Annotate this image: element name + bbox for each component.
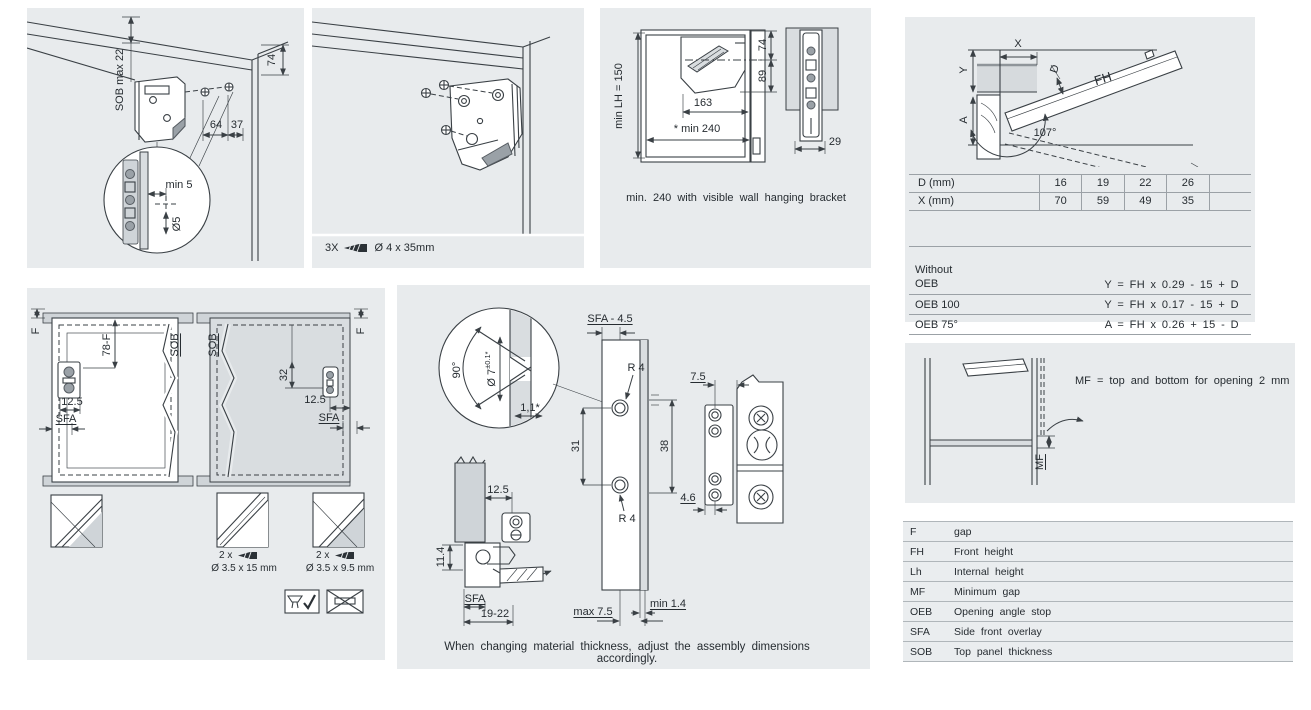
screw-15-size: Ø 3.5 x 15 mm xyxy=(189,563,299,574)
legend-abbr: SOB xyxy=(903,646,954,658)
label-x: X xyxy=(1014,38,1021,50)
dim-1922: 19-22 xyxy=(481,608,509,620)
drilling-pattern-line-art xyxy=(397,285,870,669)
label-sob-left: SOB xyxy=(169,333,181,356)
legend-desc: Front height xyxy=(954,546,1013,558)
dim-r4-bottom: R 4 xyxy=(618,513,635,525)
screw-15-row: 2 x xyxy=(219,550,258,561)
dim-sob-max: SOB max 22 xyxy=(114,49,126,111)
dim-31: 31 xyxy=(570,440,582,452)
dim-f-left: F xyxy=(30,328,42,335)
panel-hinge-position: SOB max 22 74 64 37 min 5 Ø5 xyxy=(27,8,304,268)
table-row: D (mm) 16 19 22 26 xyxy=(909,174,1251,192)
dim-min-240: * min 240 xyxy=(674,123,720,135)
cabinet-corner-line-art xyxy=(27,8,304,268)
dim-min5: min 5 xyxy=(166,179,193,191)
dx-table: D (mm) 16 19 22 26 X (mm) 70 59 49 35 xyxy=(909,174,1251,211)
dim-29: 29 xyxy=(829,136,841,148)
cell: 22 xyxy=(1124,175,1166,192)
corner-thumbnail-2 xyxy=(217,493,268,547)
legend-row: MF Minimum gap xyxy=(903,581,1293,601)
panel7-caption: When changing material thickness, adjust… xyxy=(412,641,842,665)
label-a: A xyxy=(958,116,970,123)
panel-minimum-gap: MF MF = top and bottom for opening 2 mm xyxy=(905,343,1295,503)
cell: 49 xyxy=(1124,193,1166,210)
screw-qty-label: 3X xyxy=(325,242,338,254)
dim-sfa-45: SFA - 4.5 xyxy=(587,313,632,325)
dim-r4-top: R 4 xyxy=(627,362,644,374)
corner-thumbnail-1 xyxy=(51,495,102,547)
screw-95-size: Ø 3.5 x 9.5 mm xyxy=(285,563,395,574)
legend-abbr: FH xyxy=(903,546,954,558)
formula-label: OEB 75° xyxy=(909,318,958,332)
legend-desc: Minimum gap xyxy=(954,586,1020,598)
dia7-value: Ø 7 xyxy=(486,369,498,387)
dim-min-lh: min LH = 150 xyxy=(613,63,625,129)
legend-abbr: OEB xyxy=(903,606,954,618)
label-y: Y xyxy=(958,66,970,73)
panel-screw-mounting: 3X Ø 4 x 35mm xyxy=(312,8,584,268)
dim-74: 74 xyxy=(757,39,769,51)
label-sfa-right: SFA xyxy=(319,412,340,424)
label-sfa: SFA xyxy=(465,593,486,605)
formula-row: OEB 100 Y = FH x 0.17 - 15 + D xyxy=(909,294,1251,314)
legend-row: FH Front height xyxy=(903,541,1293,561)
screw-size-label: Ø 4 x 35mm xyxy=(374,242,434,254)
dim-37: 37 xyxy=(231,119,243,131)
panel-internal-dimensions: min LH = 150 74 89 163 * min 240 29 min.… xyxy=(600,8,871,268)
screw-icon xyxy=(238,551,258,560)
dim-90deg: 90° xyxy=(451,362,463,379)
screw-icon xyxy=(344,243,368,253)
panel3-caption: min. 240 with visible wall hanging brack… xyxy=(608,192,864,204)
panel-front-height: Y A X D FH 107° D (mm) 16 19 22 26 X (mm… xyxy=(905,17,1255,322)
cell: 59 xyxy=(1081,193,1123,210)
dim-32: 32 xyxy=(278,369,290,381)
screw-mounting-line-art xyxy=(312,8,584,268)
formula-value: A = FH x 0.26 + 15 - D xyxy=(1105,319,1251,331)
legend-row: F gap xyxy=(903,521,1293,541)
dim-78-f: 78-F xyxy=(101,334,113,357)
cell: 35 xyxy=(1166,193,1208,210)
dim-max75: max 7.5 xyxy=(573,606,612,618)
dim-dia5: Ø5 xyxy=(171,217,183,232)
dim-46: 4.6 xyxy=(680,492,695,504)
screw-spec-row: 3X Ø 4 x 35mm xyxy=(325,242,434,254)
formula-row: Without OEB Y = FH x 0.29 - 15 + D xyxy=(909,246,1251,294)
cell: 16 xyxy=(1039,175,1081,192)
formula-label: Without OEB xyxy=(909,263,952,291)
dia7-tolerance: ±0.1* xyxy=(483,351,492,368)
legend-desc: Internal height xyxy=(954,566,1024,578)
cell: 70 xyxy=(1039,193,1081,210)
label-sfa-left: SFA xyxy=(56,413,77,425)
legend-abbr: F xyxy=(903,526,954,538)
dim-38: 38 xyxy=(659,440,671,452)
legend-row: SOB Top panel thickness xyxy=(903,641,1293,662)
cell: 19 xyxy=(1081,175,1123,192)
front-height-line-art xyxy=(905,17,1255,167)
cell xyxy=(1209,193,1251,210)
cell xyxy=(1209,175,1251,192)
countersunk-ok-icon xyxy=(285,590,319,613)
screw-icon xyxy=(335,551,355,560)
legend-row: Lh Internal height xyxy=(903,561,1293,581)
screw-95-row: 2 x xyxy=(316,550,355,561)
legend-abbr: Lh xyxy=(903,566,954,578)
dim-dia7: Ø 7±0.1* xyxy=(482,351,498,386)
dim-125-right: 12.5 xyxy=(304,394,325,406)
screw-qty-label: 2 x xyxy=(219,550,232,561)
legend-abbr: MF xyxy=(903,586,954,598)
formula-value: Y = FH x 0.29 - 15 + D xyxy=(1104,279,1251,291)
formula-label: OEB 100 xyxy=(909,298,960,312)
dim-114: 11.4 xyxy=(435,547,447,568)
label-angle: 107° xyxy=(1034,127,1057,139)
mf-note: MF = top and bottom for opening 2 mm xyxy=(1075,375,1289,387)
legend-desc: Opening angle stop xyxy=(954,606,1051,618)
legend-row: OEB Opening angle stop xyxy=(903,601,1293,621)
instruction-sheet: { "p1": { "sob_max": "SOB max 22", "dim_… xyxy=(0,0,1311,710)
pan-head-not-allowed-icon xyxy=(327,590,363,613)
corner-thumbnail-3 xyxy=(313,493,364,547)
label-sob-right: SOB xyxy=(207,333,219,356)
table-row: X (mm) 70 59 49 35 xyxy=(909,192,1251,211)
dim-75: 7.5 xyxy=(690,371,705,383)
row-label: X (mm) xyxy=(909,193,1039,210)
minimum-gap-line-art xyxy=(905,343,1295,503)
dim-min14: min 1.4 xyxy=(650,598,686,610)
label-mf: MF xyxy=(1034,454,1046,470)
cell: 26 xyxy=(1166,175,1208,192)
legend-desc: gap xyxy=(954,526,972,538)
legend-row: SFA Side front overlay xyxy=(903,621,1293,641)
panel-drilling-pattern: SFA - 4.5 90° Ø 7±0.1* 1,1* R 4 R 4 31 3… xyxy=(397,285,870,669)
legend-abbr: SFA xyxy=(903,626,954,638)
dim-163: 163 xyxy=(694,97,712,109)
front-overlay-line-art xyxy=(27,288,385,660)
dim-125-left: 12.5 xyxy=(61,396,82,408)
legend-desc: Top panel thickness xyxy=(954,646,1052,658)
dim-125: 12.5 xyxy=(487,484,508,496)
screw-qty-label: 2 x xyxy=(316,550,329,561)
panel-front-overlay: F 78-F SOB 12.5 SFA SOB 32 12.5 SFA F 2 … xyxy=(27,288,385,660)
row-label: D (mm) xyxy=(909,175,1039,192)
legend-desc: Side front overlay xyxy=(954,626,1042,638)
dim-11: 1,1* xyxy=(520,402,540,414)
dim-74: 74 xyxy=(266,54,278,66)
dim-64: 64 xyxy=(210,119,222,131)
dim-f-right: F xyxy=(355,328,367,335)
formula-value: Y = FH x 0.17 - 15 + D xyxy=(1104,299,1251,311)
dim-89: 89 xyxy=(757,70,769,82)
formula-row: OEB 75° A = FH x 0.26 + 15 - D xyxy=(909,314,1251,335)
formula-table: Without OEB Y = FH x 0.29 - 15 + D OEB 1… xyxy=(909,246,1251,335)
abbreviation-legend: F gap FH Front height Lh Internal height… xyxy=(903,521,1293,662)
